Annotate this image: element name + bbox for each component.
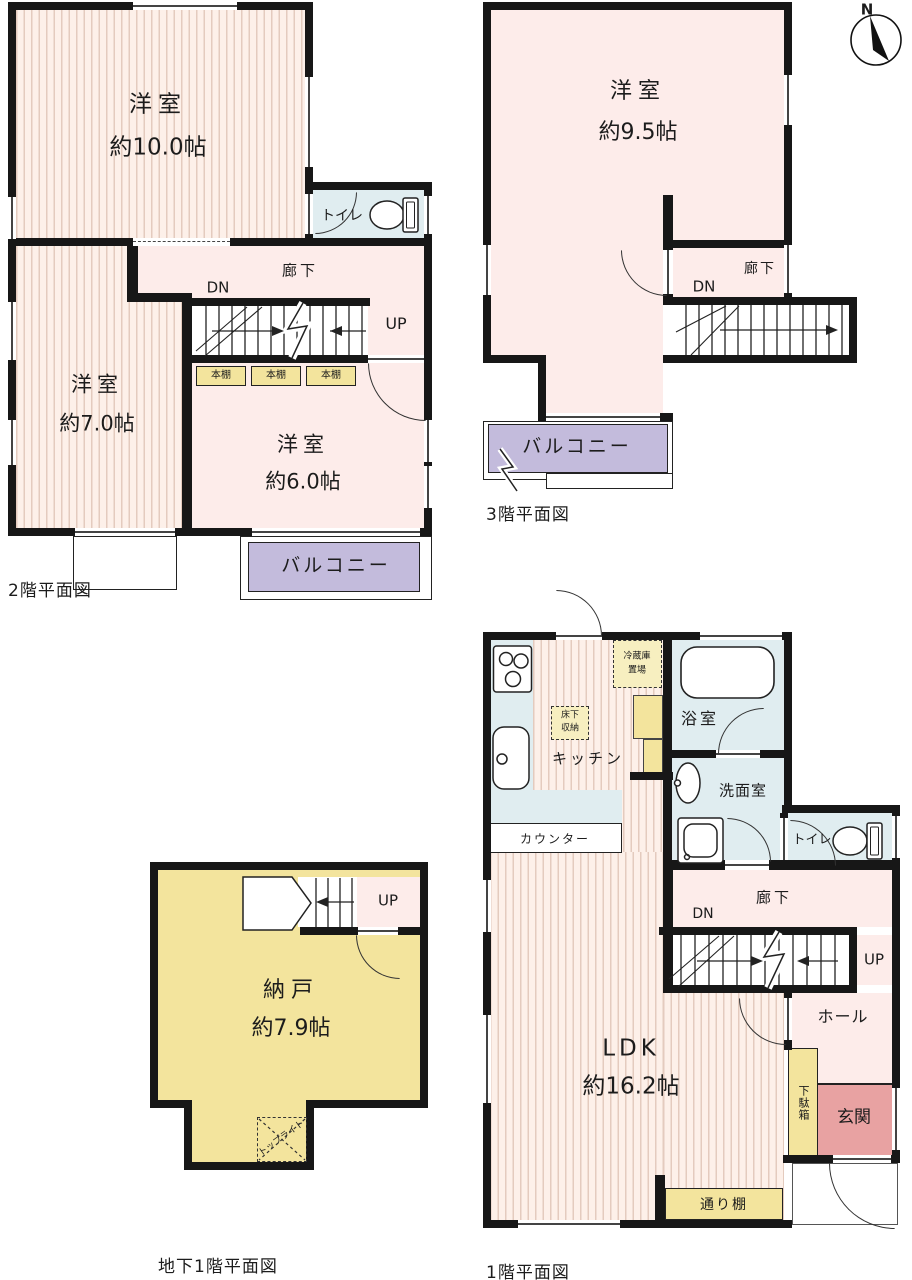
- wall: [663, 355, 857, 363]
- stairs-b1: [298, 877, 357, 927]
- balcony-label: バルコニー: [281, 557, 391, 576]
- shoe-cabinet: 下駄箱: [788, 1048, 818, 1158]
- window: [483, 245, 491, 295]
- wall: [663, 638, 672, 777]
- sliding-door: [133, 238, 230, 246]
- window: [8, 302, 16, 360]
- ldk-area: 約16.2帖: [582, 1076, 679, 1099]
- fridge-space-label: 置場: [628, 667, 646, 676]
- window: [892, 1088, 900, 1150]
- wall: [663, 297, 857, 305]
- dn-label: DN: [207, 281, 230, 296]
- wall: [663, 870, 673, 993]
- wall: [420, 862, 428, 1108]
- window: [784, 245, 792, 293]
- wall: [305, 182, 432, 190]
- window: [8, 420, 16, 465]
- wall: [630, 772, 673, 780]
- room-2f-western10: [16, 10, 305, 240]
- wall: [782, 805, 900, 813]
- kitchen-label: キッチン: [552, 752, 624, 767]
- wall: [306, 1100, 314, 1170]
- toilet-label: トイレ: [321, 209, 363, 223]
- up-label: UP: [378, 894, 398, 909]
- window: [133, 2, 237, 10]
- wall: [150, 862, 158, 1108]
- window: [700, 632, 782, 640]
- washroom-label: 洗面室: [719, 784, 767, 799]
- ldk-name: LDK: [602, 1038, 660, 1061]
- room-area: 約9.5帖: [599, 122, 678, 144]
- wall: [184, 1162, 314, 1170]
- wall: [663, 240, 792, 248]
- window: [424, 420, 432, 462]
- window: [8, 197, 16, 239]
- balcony-label: バルコニー: [522, 438, 632, 457]
- wall: [483, 2, 784, 10]
- bookshelf-3: 本棚: [306, 366, 356, 386]
- caption-1f: 1階平面図: [486, 1258, 570, 1280]
- caption-3f: 3階平面図: [486, 500, 570, 525]
- room-area: 約10.0帖: [109, 137, 206, 160]
- underfloor-storage-label: 収納: [561, 725, 579, 734]
- wall: [849, 297, 857, 363]
- wall: [192, 298, 370, 306]
- entrance-label: 玄関: [837, 1110, 871, 1127]
- underfloor-storage-label: 床下: [561, 712, 579, 721]
- kitchen-counter: [490, 790, 622, 823]
- hallway-label: 廊下: [744, 262, 776, 276]
- hallway-label: 廊下: [282, 264, 318, 279]
- stairs-3f: [673, 305, 849, 355]
- fridge-space: [613, 640, 662, 688]
- bookshelf-2: 本棚: [251, 366, 301, 386]
- dn-label: DN: [692, 907, 713, 921]
- room-area: 約6.0帖: [265, 472, 340, 493]
- dn-label: DN: [693, 280, 716, 295]
- window: [784, 75, 792, 125]
- wall: [784, 632, 792, 813]
- window: [518, 1220, 620, 1228]
- counter-box: カウンター: [488, 823, 622, 853]
- window: [75, 528, 175, 536]
- bookshelf-label: 本棚: [266, 371, 286, 381]
- room-name: 洋室: [277, 435, 329, 456]
- wall: [306, 1100, 428, 1108]
- wall: [483, 355, 546, 363]
- passage-shelf-label: 通り棚: [700, 1194, 748, 1214]
- stairs-2f: [192, 306, 368, 355]
- wall: [483, 2, 491, 363]
- up-label: UP: [385, 316, 406, 332]
- wall: [659, 927, 857, 935]
- bookshelf-1: 本棚: [196, 366, 246, 386]
- stairs-1f: [667, 935, 849, 985]
- wall: [184, 1100, 192, 1170]
- window: [424, 466, 432, 508]
- door-arc: [556, 590, 602, 636]
- room-name: 洋室: [129, 94, 187, 117]
- door-gap: [368, 355, 424, 363]
- room-name: 洋室: [71, 375, 123, 396]
- window: [483, 1015, 491, 1103]
- room-area: 約7.9帖: [252, 1018, 331, 1040]
- fridge-space-label: 冷蔵庫: [623, 653, 650, 662]
- pantry: [633, 695, 663, 739]
- up-label: UP: [864, 953, 884, 968]
- wall: [663, 985, 857, 993]
- window: [892, 816, 900, 858]
- balcony-3f-deck: [546, 473, 673, 489]
- caption-2f: 2階平面図: [8, 576, 92, 601]
- wall: [127, 293, 192, 302]
- caption-b1: 地下1階平面図: [158, 1252, 278, 1277]
- window: [424, 196, 432, 234]
- bath-label: 浴室: [681, 711, 719, 727]
- door-gap: [833, 1155, 891, 1163]
- wall: [150, 862, 428, 870]
- bookshelf-label: 本棚: [211, 371, 231, 381]
- bookshelf-label: 本棚: [321, 371, 341, 381]
- balcony-window: [546, 413, 660, 421]
- floorplan-canvas: 本棚 本棚 本棚 洋室 約10.0帖 洋: [0, 0, 912, 1280]
- passage-shelf: 通り棚: [665, 1188, 783, 1220]
- window: [483, 880, 491, 932]
- room-3f-western: [546, 363, 663, 413]
- door-gap: [358, 927, 398, 935]
- room-2f-western7: [16, 246, 127, 298]
- balcony-window: [252, 528, 420, 536]
- under-stairs-storage-label: 収納: [251, 892, 260, 912]
- under-stairs-storage-label: 階段下: [268, 887, 277, 917]
- room-name: 洋室: [610, 81, 666, 103]
- room-name: 納戸: [263, 980, 319, 1002]
- hallway-label: 廊下: [756, 891, 792, 906]
- toilet-label: トイレ: [792, 834, 831, 847]
- door-gap: [780, 818, 788, 860]
- counter-label: カウンター: [520, 830, 590, 847]
- north-label: N: [861, 3, 874, 18]
- door-gap: [305, 194, 313, 234]
- wall: [655, 1175, 665, 1228]
- shoe-cabinet-label: 下駄箱: [795, 1085, 811, 1121]
- hall-label: ホール: [817, 1009, 868, 1025]
- compass-icon: [851, 15, 901, 65]
- wall: [182, 302, 192, 528]
- window: [305, 77, 313, 167]
- wall: [538, 355, 546, 421]
- room-area: 約7.0帖: [59, 414, 134, 435]
